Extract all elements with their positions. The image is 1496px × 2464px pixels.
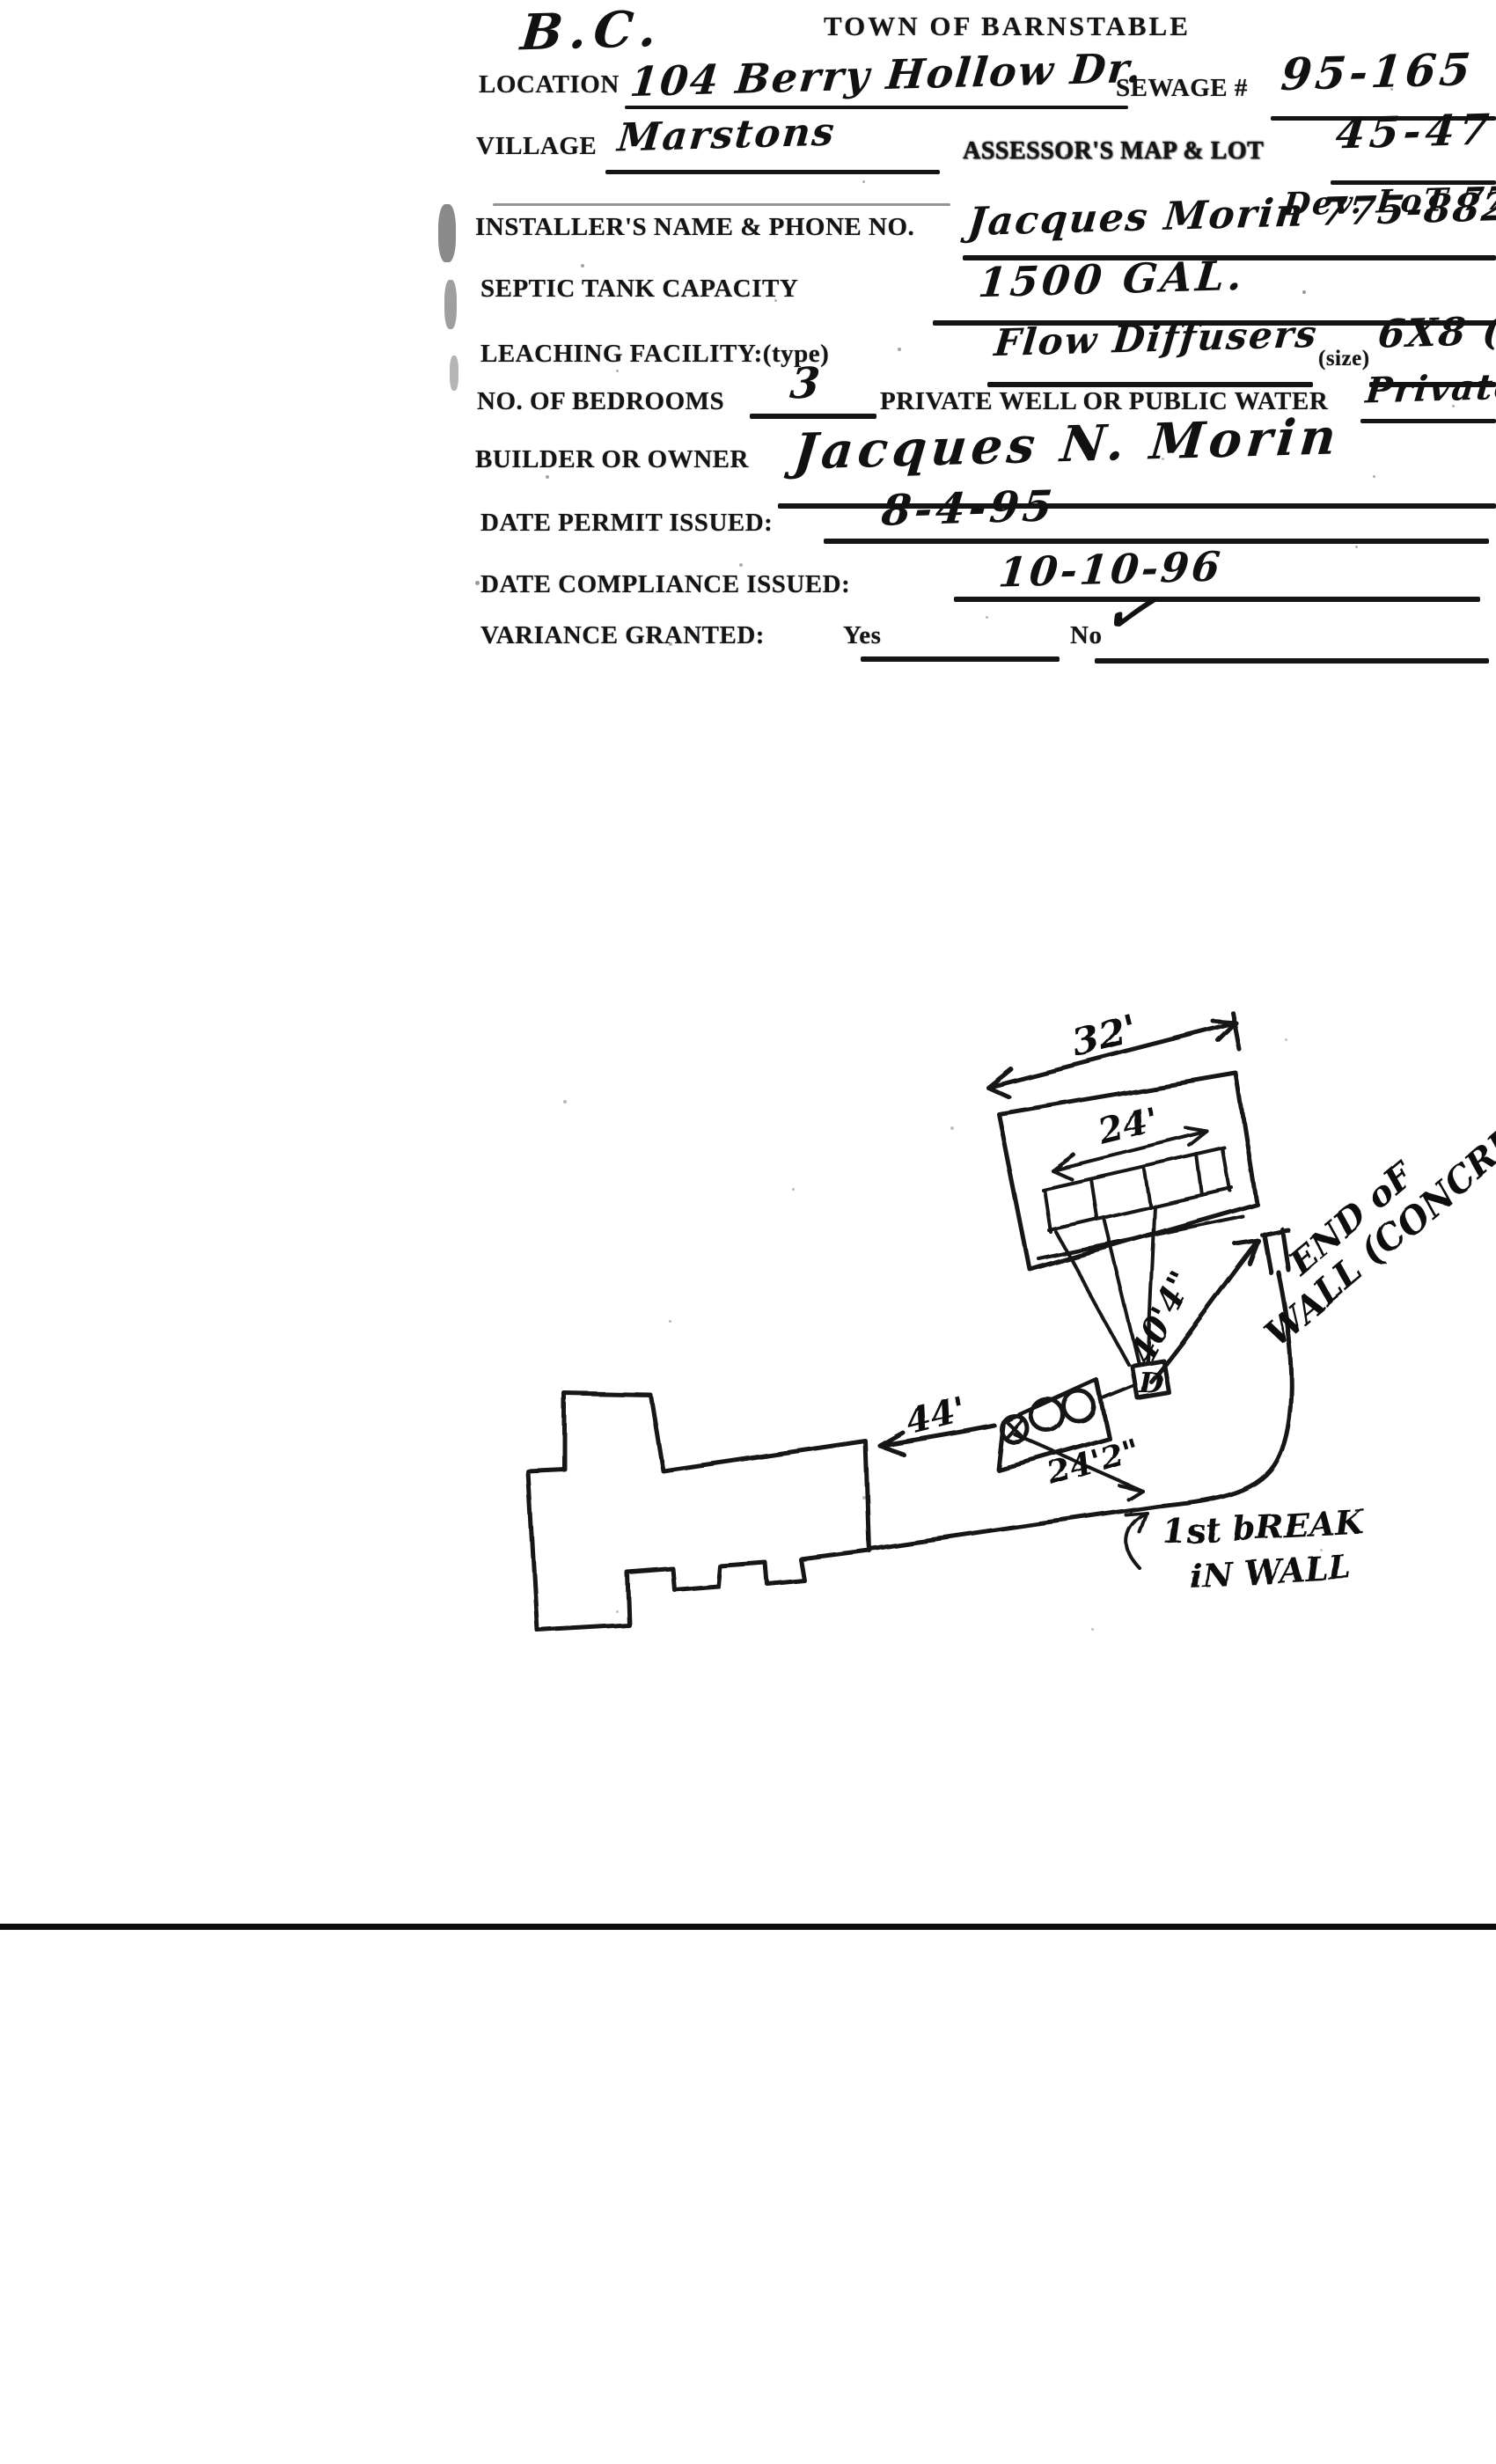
scan-speck — [1390, 88, 1393, 91]
scan-speck — [669, 132, 672, 136]
scan-speck — [1320, 1549, 1323, 1551]
end-of-wall-note-line2: WALL (CONCRET — [1257, 1100, 1496, 1354]
scan-speck — [1373, 475, 1375, 478]
scan-speck — [669, 1320, 671, 1323]
dim-32ft-label: 32' — [1067, 1006, 1141, 1066]
leaching-size-label: (size) — [1318, 347, 1370, 371]
scan-smudge — [493, 203, 950, 206]
village-value: Marstons — [616, 109, 838, 160]
scan-speck — [1285, 1038, 1287, 1041]
leaching-type-value: Flow Diffusers — [993, 312, 1320, 364]
septic-capacity-label: SEPTIC TANK CAPACITY — [480, 275, 798, 304]
scan-speck — [1091, 1628, 1094, 1631]
location-value: 104 Berry Hollow Dr. — [628, 44, 1146, 106]
scan-speck — [616, 1610, 619, 1613]
leaching-size-value: 6X8 (3) — [1376, 307, 1496, 357]
assessors-map-lot-label: ASSESSOR'S MAP & LOT — [963, 137, 1264, 165]
compliance-date-label: DATE COMPLIANCE ISSUED: — [480, 570, 850, 599]
scan-speck — [669, 642, 672, 646]
variance-yes-underline — [861, 656, 1060, 662]
scan-speck — [497, 400, 501, 404]
scan-speck — [792, 1188, 795, 1191]
scan-speck — [581, 264, 584, 268]
compliance-underline — [954, 597, 1480, 602]
variance-label: VARIANCE GRANTED: — [480, 621, 765, 650]
scan-speck — [1162, 458, 1164, 460]
installer-value: Jacques Morin 775-8822 — [966, 184, 1496, 245]
break-pointer-arrow — [1126, 1514, 1148, 1568]
scan-speck — [862, 1496, 866, 1500]
bedrooms-label: NO. OF BEDROOMS — [477, 387, 724, 416]
village-label: VILLAGE — [476, 132, 597, 161]
village-underline — [605, 170, 940, 174]
scan-speck — [739, 563, 743, 567]
house-outline — [528, 1394, 869, 1630]
break-note-line1: 1st bREAK — [1162, 1501, 1366, 1551]
leaching-facility-label: LEACHING FACILITY:(type) — [480, 340, 829, 369]
permit-date-label: DATE PERMIT ISSUED: — [480, 509, 773, 538]
scan-speck — [774, 299, 777, 302]
location-label: LOCATION — [479, 70, 620, 99]
scan-speck — [1452, 405, 1455, 407]
site-plan-sketch: 32' 24' 40'4" 44' 24'2" D END oF WALL (C… — [0, 968, 1496, 1672]
tank-to-dbox-pipe — [1104, 1385, 1133, 1397]
bedrooms-underline — [750, 414, 876, 419]
variance-yes-label: Yes — [843, 621, 881, 650]
dim-40ft4in-label: 40'4" — [1121, 1265, 1202, 1369]
permit-date-value: 8-4-95 — [879, 481, 1058, 536]
builder-owner-label: BUILDER OR OWNER — [475, 445, 749, 474]
scan-speck — [950, 1126, 954, 1130]
bedrooms-value: 3 — [788, 358, 824, 408]
page-divider-rule — [0, 1924, 1496, 1930]
assessors-value: 45-47 — [1333, 105, 1495, 158]
tank-cover-outlet — [1064, 1391, 1094, 1421]
distribution-box-label: D — [1138, 1366, 1163, 1399]
location-underline — [625, 106, 1128, 109]
document-title: TOWN OF BARNSTABLE — [824, 11, 1191, 42]
scanned-septic-permit-document: B.C. TOWN OF BARNSTABLE LOCATION 104 Ber… — [0, 0, 1496, 2464]
variance-no-underline — [1095, 658, 1489, 664]
corner-initials-note: B.C. — [518, 0, 666, 62]
sewage-number-value: 95-165 — [1279, 43, 1476, 100]
installer-label: INSTALLER'S NAME & PHONE NO. — [475, 213, 914, 242]
water-value: Private — [1364, 366, 1496, 412]
scan-speck — [546, 475, 549, 479]
scan-speck — [1302, 290, 1306, 294]
scan-smudge — [438, 204, 456, 262]
scan-speck — [475, 581, 480, 585]
break-note-line2: iN WALL — [1188, 1547, 1353, 1595]
dim-44ft-label: 44' — [902, 1389, 970, 1443]
permit-underline — [824, 539, 1489, 544]
scan-speck — [862, 180, 865, 183]
scan-speck — [563, 1100, 567, 1104]
scan-speck — [898, 348, 901, 351]
scan-smudge — [444, 280, 457, 329]
scan-smudge — [450, 356, 458, 391]
scan-speck — [616, 370, 619, 372]
scan-speck — [1065, 154, 1069, 158]
scan-speck — [1355, 546, 1358, 548]
septic-capacity-value: 1500 GAL. — [976, 252, 1247, 307]
compliance-date-value: 10-10-96 — [996, 542, 1224, 596]
sewage-number-label: SEWAGE # — [1116, 74, 1248, 103]
water-underline — [1360, 419, 1496, 423]
house-to-break-line — [869, 1507, 1158, 1549]
scan-speck — [986, 616, 988, 619]
